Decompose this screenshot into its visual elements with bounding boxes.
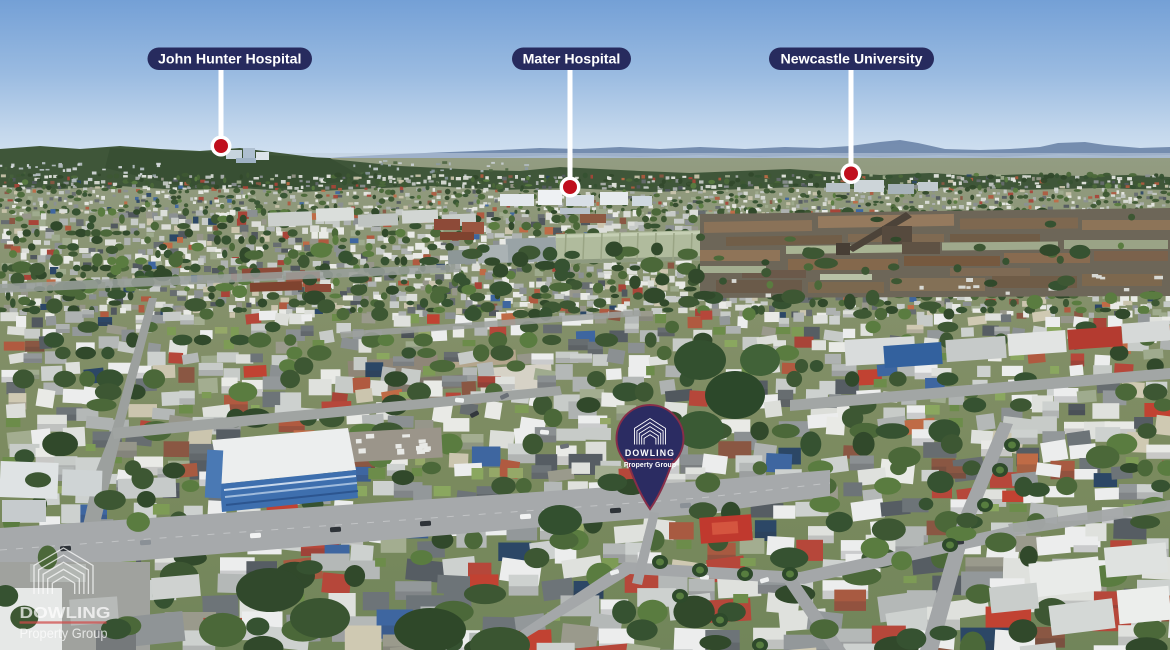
svg-text:Property Group: Property Group: [20, 626, 108, 641]
svg-text:Mater Hospital: Mater Hospital: [523, 52, 621, 68]
svg-text:Newcastle University: Newcastle University: [781, 52, 923, 68]
svg-text:DOWLING: DOWLING: [625, 448, 675, 458]
svg-text:DOWLING: DOWLING: [20, 605, 111, 622]
svg-text:Property Group: Property Group: [624, 462, 676, 469]
svg-text:John Hunter Hospital: John Hunter Hospital: [158, 52, 301, 68]
